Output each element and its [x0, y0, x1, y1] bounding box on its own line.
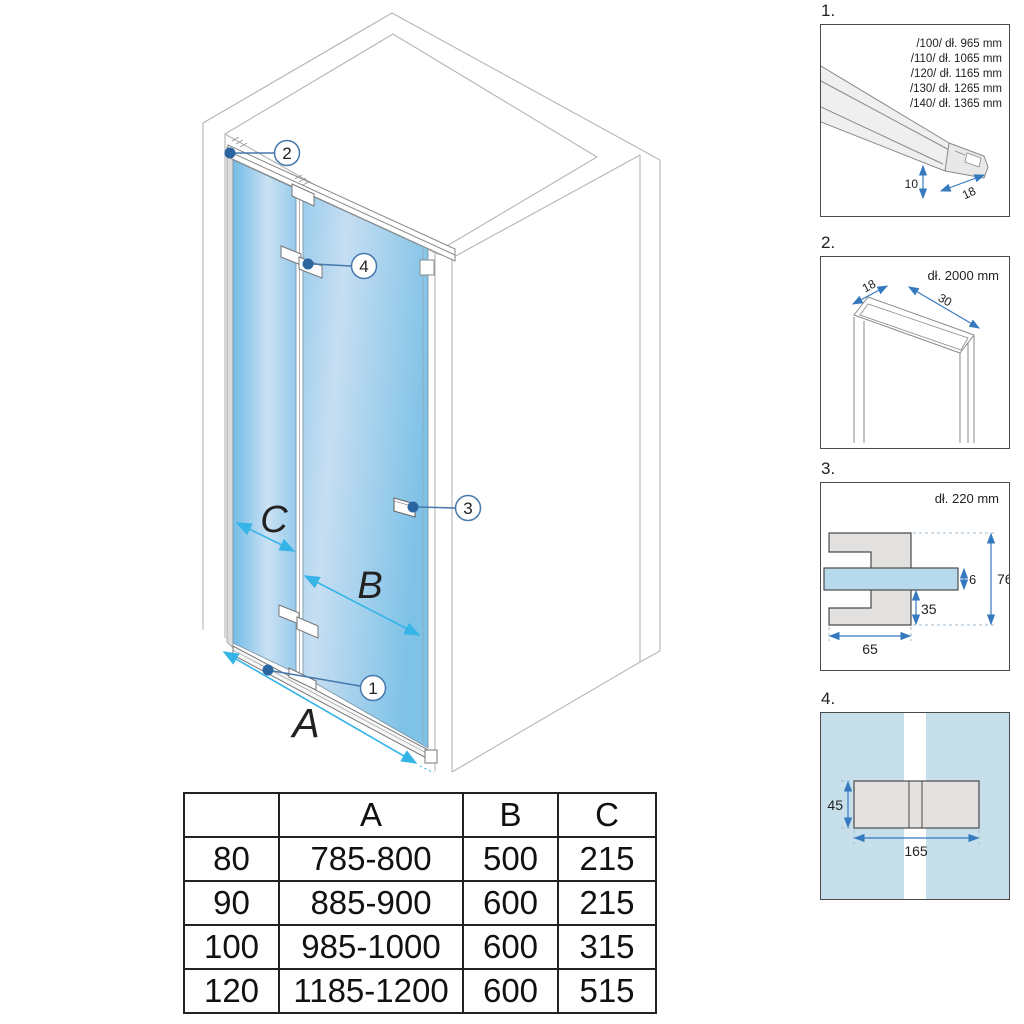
table-row: 120 1185-1200 600 515: [184, 969, 656, 1013]
size-option: /100/ dł. 965 mm: [916, 38, 1002, 50]
table-cell: 500: [463, 837, 558, 881]
panel-1-title: 1.: [821, 2, 1010, 19]
table-row: 80 785-800 500 215: [184, 837, 656, 881]
callout-3-dot: [408, 502, 419, 513]
glass-section: [824, 568, 958, 590]
panel-4: 45 165 4.: [820, 690, 1010, 900]
rail-end-bracket: [420, 260, 434, 275]
table-cell: 315: [558, 925, 656, 969]
panel-4-box: 45 165: [820, 712, 1010, 900]
table-header-cell: A: [279, 793, 463, 837]
panel-3-dim-lower: 35: [921, 601, 937, 617]
panel-1-dim-height: 10: [905, 177, 919, 191]
wall-profile-drawing: [854, 297, 974, 443]
main-diagram: A B C 2 4 3 1: [0, 0, 760, 800]
panel-4-dim-width: 165: [904, 843, 928, 859]
table-cell: 215: [558, 881, 656, 925]
table-cell: 600: [463, 969, 558, 1013]
panel-1-dim-depth: 18: [960, 184, 978, 203]
size-option: /130/ dł. 1265 mm: [910, 83, 1002, 95]
panel-2: 2. dł. 2000 mm 18: [820, 234, 1010, 449]
table-cell: 215: [558, 837, 656, 881]
panel-3-box: dł. 220 mm 6 76 35 65: [820, 482, 1010, 671]
dim-label-c: C: [260, 499, 288, 541]
dim-label-b: B: [357, 565, 382, 607]
hinge-plate: [854, 781, 979, 828]
panel-4-dim-height: 45: [827, 797, 843, 813]
panel-3: 3. dł. 220 mm: [820, 460, 1010, 671]
table-header-row: A B C: [184, 793, 656, 837]
panel-3-drawing: dł. 220 mm 6 76 35 65: [821, 483, 1009, 670]
callout-4-number: 4: [359, 257, 368, 276]
panel-4-title: 4.: [821, 690, 835, 707]
panel-3-length: dł. 220 mm: [935, 491, 999, 506]
callout-4-dot: [303, 259, 314, 270]
panel-1-box: /100/ dł. 965 mm /110/ dł. 1065 mm /120/…: [820, 24, 1010, 217]
table-cell: 120: [184, 969, 279, 1013]
panel-2-dim-width: 30: [936, 291, 955, 310]
glass-left-panel: [233, 160, 296, 673]
table-row: 100 985-1000 600 315: [184, 925, 656, 969]
panel-2-length: dł. 2000 mm: [927, 268, 999, 283]
dim-label-a: A: [289, 700, 319, 746]
panel-2-drawing: dł. 2000 mm 18 30: [821, 257, 1009, 448]
size-table: A B C 80 785-800 500 215 90 885-900 600 …: [183, 792, 657, 1014]
table-cell: 515: [558, 969, 656, 1013]
callout-2-dot: [225, 148, 236, 159]
panel-3-dim-total: 76: [997, 571, 1009, 587]
table-cell: 600: [463, 925, 558, 969]
callout-1-dot: [263, 665, 274, 676]
table-header-cell: C: [558, 793, 656, 837]
size-option: /120/ dł. 1165 mm: [911, 68, 1002, 80]
panel-3-dim-glass: 6: [969, 572, 976, 587]
callout-2-number: 2: [282, 144, 291, 163]
wall-profile: [227, 147, 233, 648]
panel-1-drawing: /100/ dł. 965 mm /110/ dł. 1065 mm /120/…: [821, 25, 1009, 216]
panel-1: 1. /100/ dł. 965 mm /110/ dł. 1065 mm /1…: [820, 2, 1010, 217]
panel-2-box: dł. 2000 mm 18 30: [820, 256, 1010, 449]
table-cell: 90: [184, 881, 279, 925]
table-cell: 885-900: [279, 881, 463, 925]
glass-door: [233, 160, 428, 748]
table-row: 90 885-900 600 215: [184, 881, 656, 925]
panel-3-title: 3.: [821, 460, 1010, 477]
table-header-cell: B: [463, 793, 558, 837]
callout-1-number: 1: [368, 679, 377, 698]
table-cell: 100: [184, 925, 279, 969]
table-cell: 785-800: [279, 837, 463, 881]
table-cell: 1185-1200: [279, 969, 463, 1013]
table-cell: 600: [463, 881, 558, 925]
callout-3-number: 3: [463, 499, 472, 518]
size-option: /140/ dł. 1365 mm: [910, 98, 1002, 110]
panel-4-drawing: 45 165: [821, 713, 1009, 899]
panel-3-dim-width: 65: [862, 641, 878, 657]
table-cell: 985-1000: [279, 925, 463, 969]
panel-2-title: 2.: [821, 234, 1010, 251]
table-header-cell: [184, 793, 279, 837]
table-cell: 80: [184, 837, 279, 881]
size-option: /110/ dł. 1065 mm: [911, 53, 1002, 65]
panel-1-size-list: /100/ dł. 965 mm /110/ dł. 1065 mm /120/…: [910, 38, 1002, 110]
